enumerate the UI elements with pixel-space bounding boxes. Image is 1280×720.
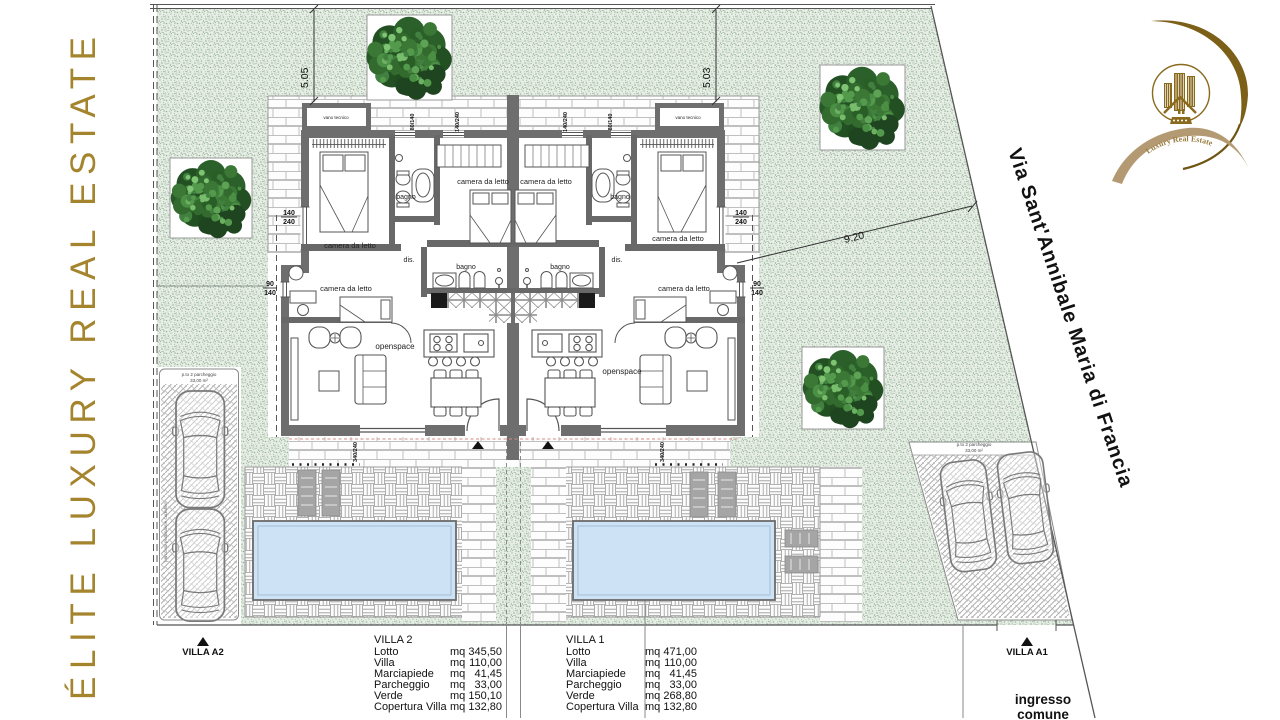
svg-text:240: 240 <box>735 219 747 226</box>
svg-text:p.to 2 parcheggio: p.to 2 parcheggio <box>182 372 217 377</box>
svg-text:camera da letto: camera da letto <box>658 284 710 293</box>
svg-text:mq: mq <box>450 701 465 713</box>
svg-text:132,80: 132,80 <box>468 701 502 713</box>
svg-text:mq: mq <box>645 701 660 713</box>
svg-text:Copertura Villa: Copertura Villa <box>374 701 447 713</box>
svg-text:openspace: openspace <box>375 342 415 351</box>
svg-text:Copertura Villa: Copertura Villa <box>566 701 639 713</box>
svg-text:140: 140 <box>283 210 295 217</box>
svg-text:percorso pedonale e carrabile: percorso pedonale e carrabile <box>163 502 168 562</box>
svg-text:5.05: 5.05 <box>299 67 311 88</box>
svg-text:80/140: 80/140 <box>608 114 614 131</box>
svg-text:33,00 m²: 33,00 m² <box>190 378 208 383</box>
svg-text:openspace: openspace <box>602 367 642 376</box>
svg-text:80/140: 80/140 <box>410 114 416 131</box>
svg-text:140/240: 140/240 <box>455 112 461 132</box>
svg-text:camera da letto: camera da letto <box>320 284 372 293</box>
svg-text:140/240: 140/240 <box>563 112 569 132</box>
svg-text:vano tecnico: vano tecnico <box>675 115 701 120</box>
svg-text:bagno: bagno <box>610 194 630 201</box>
svg-text:340/240: 340/240 <box>353 442 359 462</box>
svg-text:140: 140 <box>751 290 763 297</box>
svg-text:VILLA 2: VILLA 2 <box>374 634 413 646</box>
svg-text:camera da letto: camera da letto <box>520 177 572 186</box>
svg-text:340/240: 340/240 <box>660 442 666 462</box>
svg-text:p.to 2 parcheggio: p.to 2 parcheggio <box>957 442 992 447</box>
svg-text:dis.: dis. <box>612 257 623 264</box>
svg-text:comune: comune <box>1017 707 1069 720</box>
svg-text:bagno: bagno <box>396 194 416 201</box>
svg-text:240: 240 <box>283 219 295 226</box>
svg-text:bagno: bagno <box>550 264 570 271</box>
svg-text:ÉLITE LUXURY REAL ESTATE: ÉLITE LUXURY REAL ESTATE <box>64 29 103 700</box>
svg-text:VILLA 1: VILLA 1 <box>566 634 605 646</box>
svg-text:camera da letto: camera da letto <box>652 234 704 243</box>
svg-text:140: 140 <box>264 290 276 297</box>
svg-text:ingresso: ingresso <box>1015 692 1071 707</box>
svg-text:VILLA A1: VILLA A1 <box>1006 647 1048 658</box>
svg-text:90: 90 <box>266 281 274 288</box>
svg-text:bagno: bagno <box>456 264 476 271</box>
svg-text:33,00 m²: 33,00 m² <box>965 448 983 453</box>
svg-text:132,80: 132,80 <box>663 701 697 713</box>
svg-text:dis.: dis. <box>404 257 415 264</box>
svg-text:90: 90 <box>753 281 761 288</box>
svg-text:vano tecnico: vano tecnico <box>323 115 349 120</box>
svg-text:camera da letto: camera da letto <box>457 177 509 186</box>
svg-text:5.03: 5.03 <box>701 67 713 88</box>
svg-text:camera da letto: camera da letto <box>324 241 376 250</box>
svg-text:140: 140 <box>735 210 747 217</box>
svg-text:VILLA A2: VILLA A2 <box>182 647 224 658</box>
